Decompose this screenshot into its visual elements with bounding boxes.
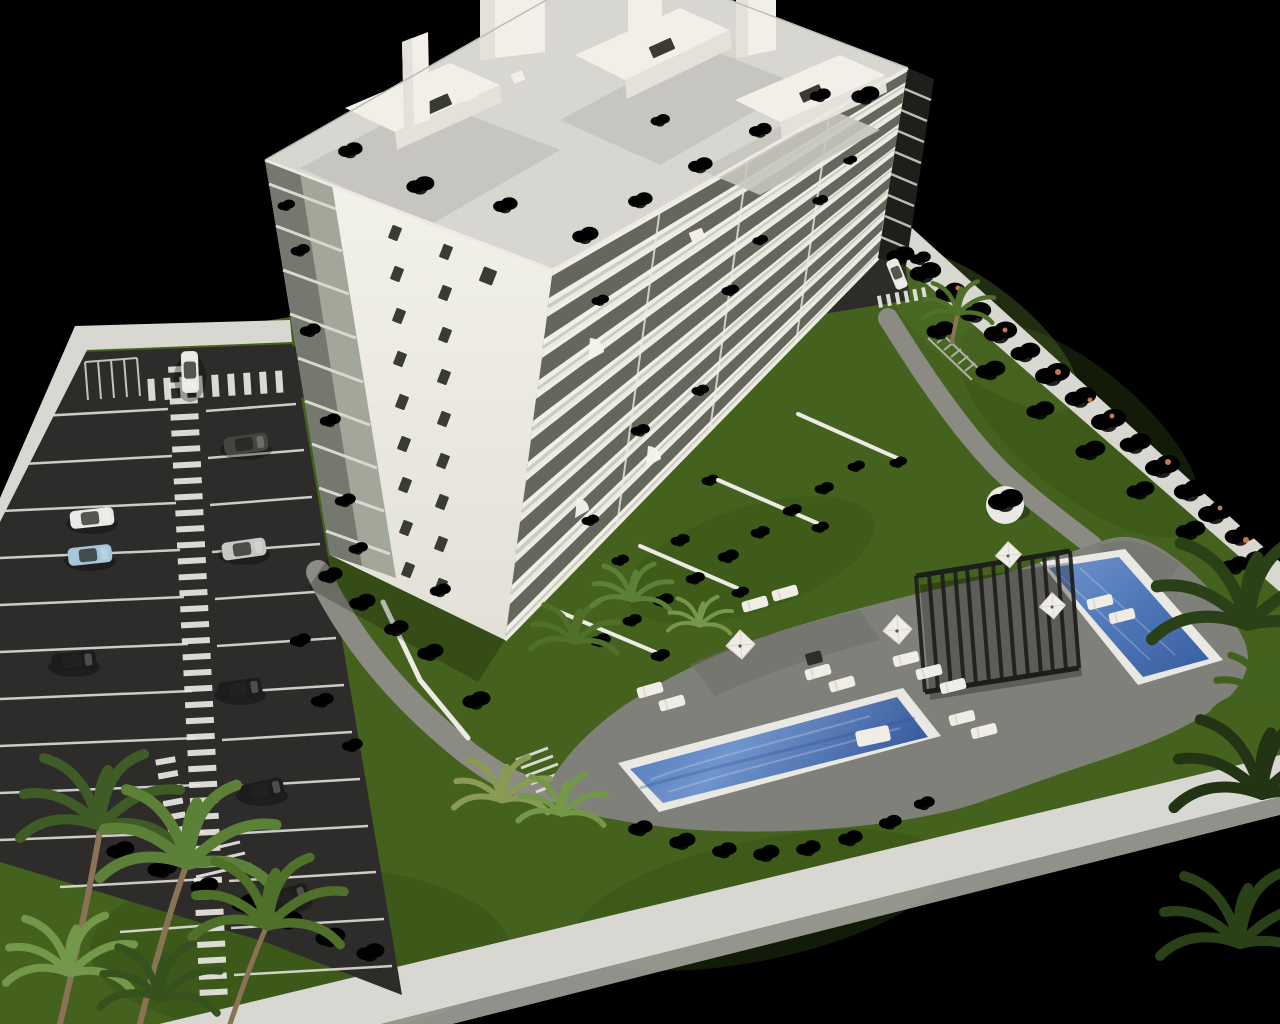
render-canvas: Aerial 3D rendering of a white multi-sto… xyxy=(0,0,1280,1024)
pergola xyxy=(916,551,1082,700)
car-white-moving xyxy=(181,351,200,393)
site-render xyxy=(0,0,1280,1024)
